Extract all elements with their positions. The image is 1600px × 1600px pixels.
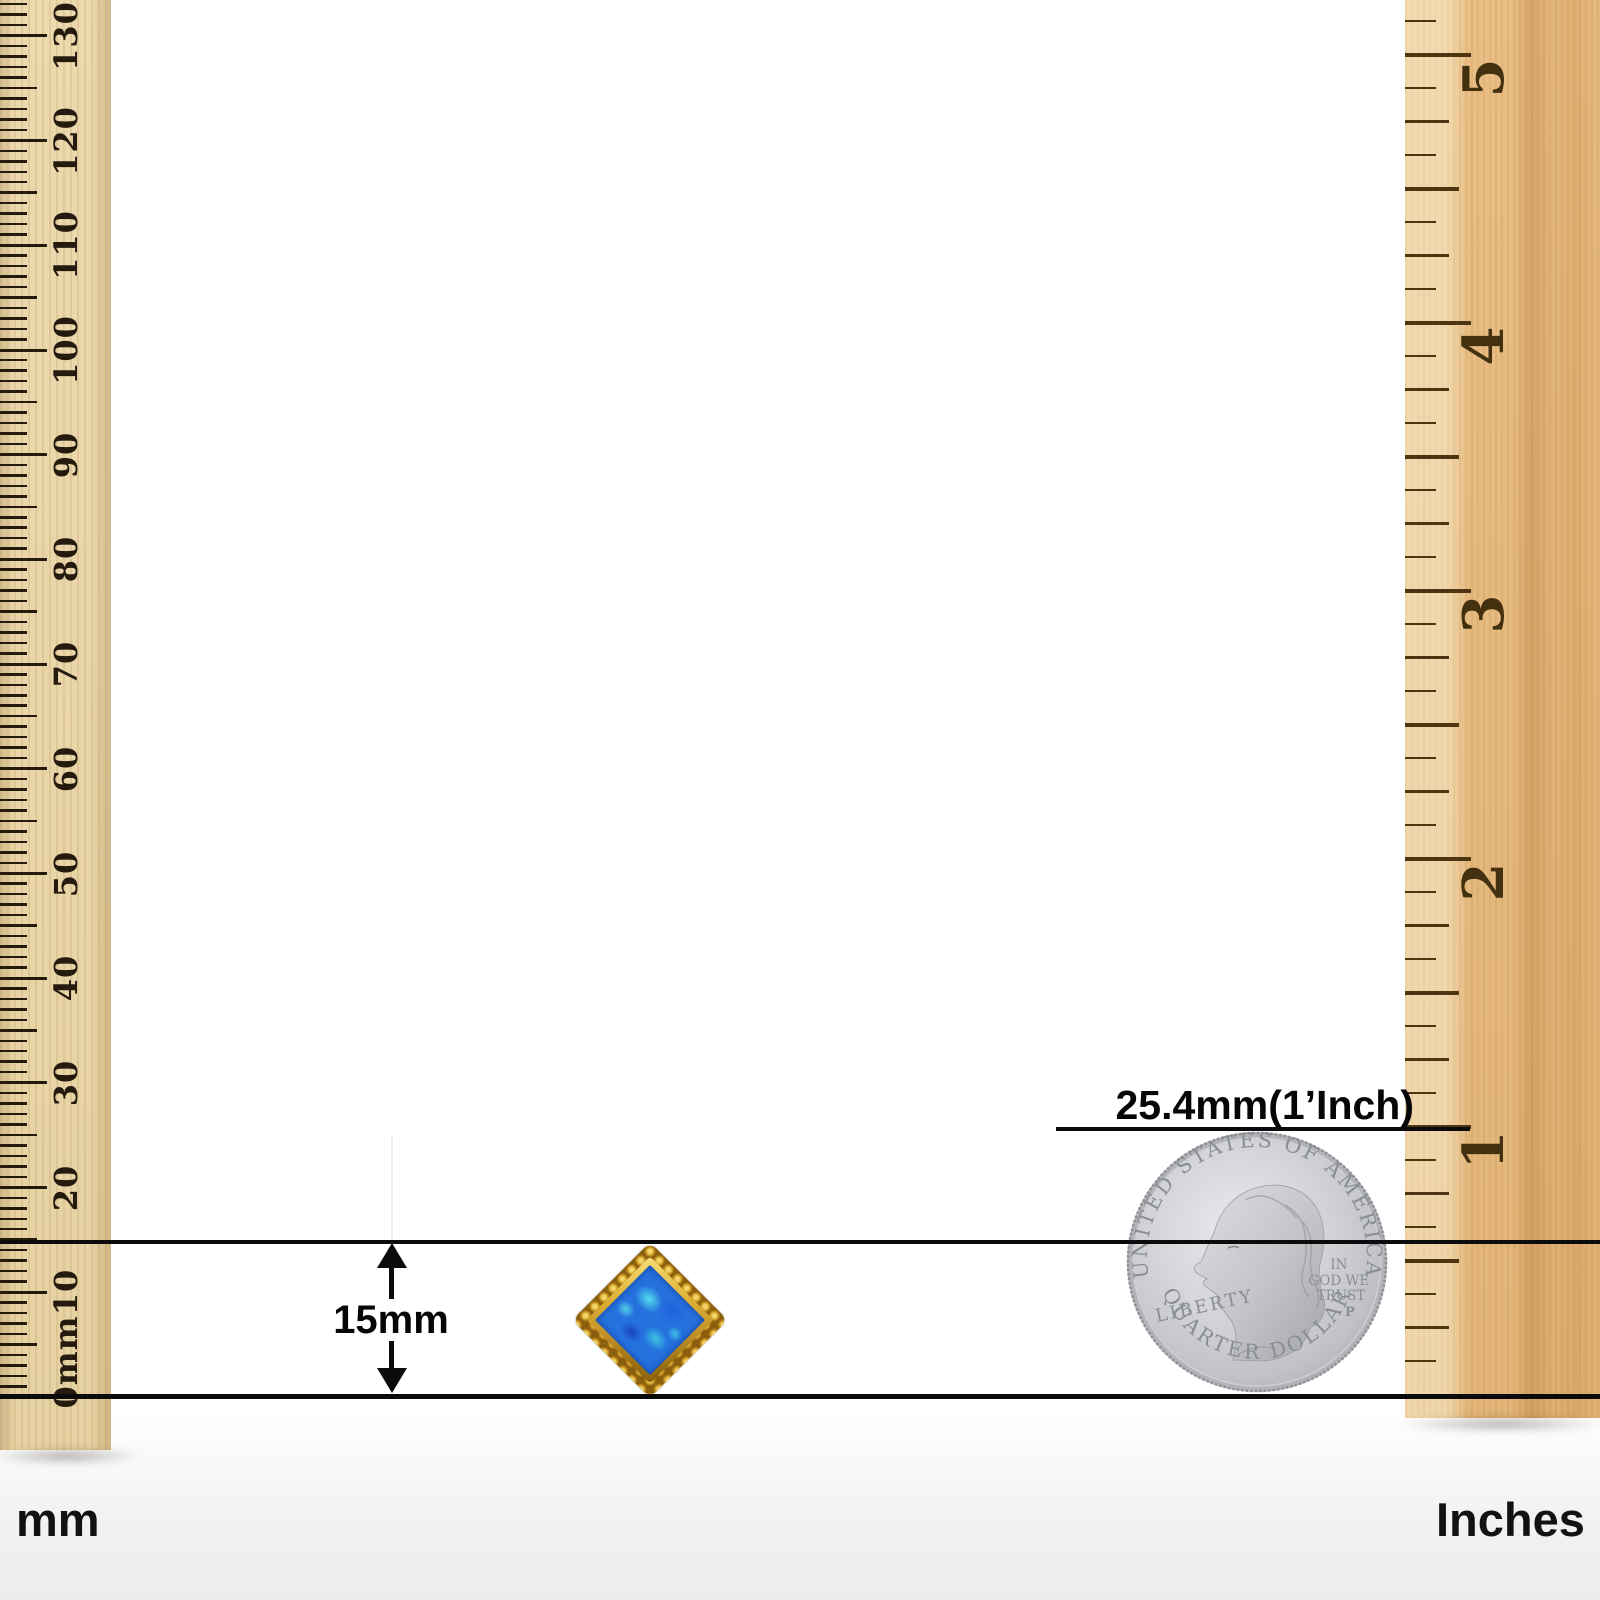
mm-tick [0, 725, 27, 728]
mm-tick [0, 1081, 47, 1084]
inch-tick [1405, 455, 1459, 459]
mm-ruler-number: 30 [47, 1060, 85, 1107]
inch-tick [1405, 857, 1471, 861]
inch-tick [1405, 656, 1449, 659]
inch-tick [1405, 187, 1459, 191]
mm-tick [0, 1050, 27, 1053]
mm-tick [0, 526, 27, 529]
mm-tick [0, 139, 47, 142]
mm-tick [0, 317, 27, 320]
inch-tick [1405, 1159, 1436, 1162]
mm-tick [0, 1364, 27, 1367]
mm-ruler-number: 120 [47, 106, 85, 176]
inch-tick [1405, 790, 1449, 793]
arrow-up-icon [377, 1243, 407, 1268]
mm-tick [0, 977, 47, 980]
mm-tick [0, 129, 27, 132]
mm-ruler-number: 110 [47, 210, 85, 280]
mm-tick [0, 1333, 27, 1336]
mm-tick [0, 495, 27, 498]
mm-ruler: 0mm102030405060708090100110120130 [0, 0, 111, 1450]
inch-tick [1405, 87, 1436, 90]
mm-tick [0, 1155, 27, 1158]
inch-tick [1405, 623, 1436, 626]
background-fade [0, 1410, 1600, 1600]
mm-tick [0, 757, 27, 760]
inch-tick [1405, 221, 1436, 224]
mm-tick [0, 851, 27, 854]
mm-tick [0, 684, 27, 687]
inch-ruler-number: 2 [1451, 863, 1517, 902]
mm-tick [0, 778, 27, 781]
mm-tick [0, 799, 27, 802]
mm-tick [0, 87, 37, 90]
mm-tick [0, 275, 27, 278]
inch-tick [1405, 690, 1436, 693]
mm-tick [0, 108, 27, 111]
inch-tick [1405, 824, 1436, 827]
mm-tick [0, 3, 27, 6]
mm-ruler-number: 90 [47, 431, 85, 478]
inch-tick [1405, 958, 1436, 961]
mm-tick [0, 369, 27, 372]
coin-motto-line: IN [1330, 1257, 1347, 1273]
mm-ruler-number: 100 [47, 315, 85, 385]
mm-tick [0, 76, 27, 79]
inch-tick [1405, 154, 1436, 157]
mm-tick [0, 1322, 27, 1325]
mm-tick [0, 1134, 37, 1137]
mm-tick [0, 841, 27, 844]
mm-tick [0, 1354, 27, 1357]
mm-tick [0, 610, 37, 613]
mm-tick [0, 558, 47, 561]
mm-tick [0, 1301, 27, 1304]
coin-motto-line: TRUST [1317, 1288, 1366, 1304]
mm-tick [0, 244, 47, 247]
mm-tick [0, 820, 37, 823]
mm-tick [0, 704, 27, 707]
mm-tick [0, 1113, 27, 1116]
mm-tick [0, 1280, 27, 1283]
mm-tick [0, 1259, 27, 1262]
mm-tick [0, 914, 27, 917]
mm-tick [0, 223, 27, 226]
mm-tick [0, 296, 37, 299]
mm-tick [0, 1019, 27, 1022]
inch-tick [1405, 388, 1449, 391]
mm-tick [0, 736, 27, 739]
mm-ruler-number: 40 [47, 955, 85, 1002]
inch-tick [1405, 1058, 1449, 1061]
inch-tick [1405, 924, 1449, 927]
inch-tick [1405, 422, 1436, 425]
mm-tick [0, 1123, 27, 1126]
mm-tick [0, 767, 47, 770]
mm-tick [0, 171, 27, 174]
mm-tick [0, 935, 27, 938]
inch-tick [1405, 1360, 1436, 1363]
inch-tick [1405, 556, 1436, 559]
mm-tick [0, 663, 47, 666]
mm-tick [0, 809, 27, 812]
mm-tick [0, 903, 27, 906]
mm-tick [0, 1343, 37, 1346]
inch-tick [1405, 891, 1436, 894]
mm-tick [0, 464, 27, 467]
mm-unit-label: mm [16, 1492, 100, 1547]
inch-ruler: 12345 [1405, 0, 1600, 1418]
mm-ruler-number: 130 [47, 1, 85, 71]
mm-tick [0, 1197, 27, 1200]
inch-tick [1405, 1259, 1459, 1263]
size-label: 15mm [326, 1299, 456, 1341]
mm-tick [0, 1207, 27, 1210]
mm-tick [0, 652, 27, 655]
mm-tick [0, 1385, 27, 1388]
inch-tick [1405, 1226, 1436, 1229]
mm-tick [0, 882, 27, 885]
mm-tick [0, 254, 27, 257]
mm-tick [0, 746, 27, 749]
mm-tick [0, 328, 27, 331]
mm-tick [0, 202, 27, 205]
mm-tick [0, 673, 27, 676]
mm-tick [0, 401, 37, 404]
mm-tick [0, 422, 27, 425]
inch-tick [1405, 355, 1436, 358]
mm-tick [0, 1040, 27, 1043]
mm-tick [0, 579, 27, 582]
mm-tick [0, 893, 27, 896]
inch-tick [1405, 1293, 1436, 1296]
mm-tick [0, 1249, 27, 1252]
mm-tick [0, 924, 37, 927]
mm-tick [0, 150, 27, 153]
mm-tick [0, 1102, 27, 1105]
mm-tick [0, 432, 27, 435]
mm-ruler-number: 10 [47, 1269, 85, 1316]
coin-mint-mark: P [1345, 1305, 1355, 1320]
inch-tick [1405, 1192, 1449, 1195]
inch-ruler-shadow [1396, 1416, 1600, 1432]
mm-tick [0, 862, 27, 865]
mm-tick [0, 966, 27, 969]
mm-tick [0, 181, 27, 184]
coin-motto-line: GOD WE [1309, 1273, 1370, 1289]
mm-tick [0, 411, 27, 414]
inch-tick [1405, 254, 1449, 257]
mm-tick [0, 1186, 47, 1189]
inch-tick [1405, 288, 1436, 291]
mm-tick [0, 872, 47, 875]
inch-ruler-number: 4 [1451, 327, 1517, 366]
mm-tick [0, 265, 27, 268]
mm-ruler-number: 80 [47, 536, 85, 583]
mm-tick [0, 286, 27, 289]
mm-tick [0, 359, 27, 362]
mm-tick [0, 97, 27, 100]
inch-tick [1405, 20, 1436, 23]
inch-tick [1405, 1326, 1449, 1329]
mm-tick [0, 191, 37, 194]
inch-reference-label: 25.4mm(1’Inch) [1046, 1082, 1414, 1129]
mm-tick [0, 516, 27, 519]
mm-tick [0, 589, 27, 592]
mm-tick [0, 1165, 27, 1168]
mm-tick [0, 443, 27, 446]
inch-tick [1405, 757, 1436, 760]
inch-tick [1405, 489, 1436, 492]
mm-tick [0, 830, 27, 833]
mm-tick [0, 13, 27, 16]
mm-tick [0, 1008, 27, 1011]
inch-tick [1405, 723, 1459, 727]
mm-tick [0, 349, 47, 352]
inch-tick [1405, 589, 1471, 593]
mm-tick [0, 474, 27, 477]
mm-tick [0, 45, 27, 48]
mm-tick [0, 547, 27, 550]
mm-ruler-number: 70 [47, 641, 85, 688]
mm-tick [0, 1144, 27, 1147]
inch-ruler-number: 3 [1451, 595, 1517, 634]
mm-tick [0, 453, 47, 456]
opal-stud-earring [570, 1240, 730, 1400]
inch-tick [1405, 991, 1459, 995]
mm-tick [0, 600, 27, 603]
mm-tick [0, 390, 27, 393]
mm-ruler-number: 50 [47, 850, 85, 897]
mm-tick [0, 485, 27, 488]
mm-tick [0, 1071, 27, 1074]
mm-ruler-number: 60 [47, 746, 85, 793]
inch-tick [1405, 53, 1471, 57]
mm-tick [0, 1375, 27, 1378]
mm-tick [0, 338, 27, 341]
mm-tick [0, 998, 27, 1001]
mm-tick [0, 307, 27, 310]
mm-tick [0, 55, 27, 58]
mm-tick [0, 212, 27, 215]
mm-tick [0, 956, 27, 959]
mm-tick [0, 568, 27, 571]
mm-tick [0, 621, 27, 624]
mm-tick [0, 1270, 27, 1273]
inch-tick [1405, 321, 1471, 325]
inch-ruler-number: 5 [1451, 59, 1517, 98]
mm-tick [0, 987, 27, 990]
upper-measure-line [0, 1240, 1600, 1244]
mm-tick [0, 24, 27, 27]
mm-tick [0, 642, 27, 645]
mm-tick [0, 1092, 27, 1095]
mm-tick [0, 694, 27, 697]
mm-tick [0, 945, 27, 948]
mm-tick [0, 506, 37, 509]
mm-tick [0, 1060, 27, 1063]
inch-tick [1405, 1025, 1436, 1028]
mm-tick [0, 631, 27, 634]
arrow-down-icon [377, 1368, 407, 1393]
mm-tick [0, 1176, 27, 1179]
mm-tick [0, 34, 47, 37]
inch-tick [1405, 120, 1449, 123]
mm-ruler-number: 20 [47, 1164, 85, 1211]
mm-tick [0, 160, 27, 163]
mm-tick [0, 1312, 27, 1315]
inch-ruler-number: 1 [1451, 1131, 1517, 1170]
faint-guide-line [391, 1136, 393, 1240]
inches-unit-label: Inches [1436, 1492, 1585, 1547]
mm-tick [0, 233, 27, 236]
mm-tick [0, 1291, 47, 1294]
mm-tick [0, 380, 27, 383]
mm-tick [0, 1228, 27, 1231]
mm-tick [0, 788, 27, 791]
mm-tick [0, 715, 37, 718]
mm-tick [0, 118, 27, 121]
mm-tick [0, 537, 27, 540]
mm-tick [0, 1029, 37, 1032]
quarter-coin: UNITED STATES OF AMERICA QUARTER DOLLAR … [1125, 1130, 1389, 1394]
mm-tick [0, 66, 27, 69]
mm-tick [0, 1218, 27, 1221]
inch-tick [1405, 522, 1449, 525]
lower-measure-line [0, 1394, 1600, 1399]
